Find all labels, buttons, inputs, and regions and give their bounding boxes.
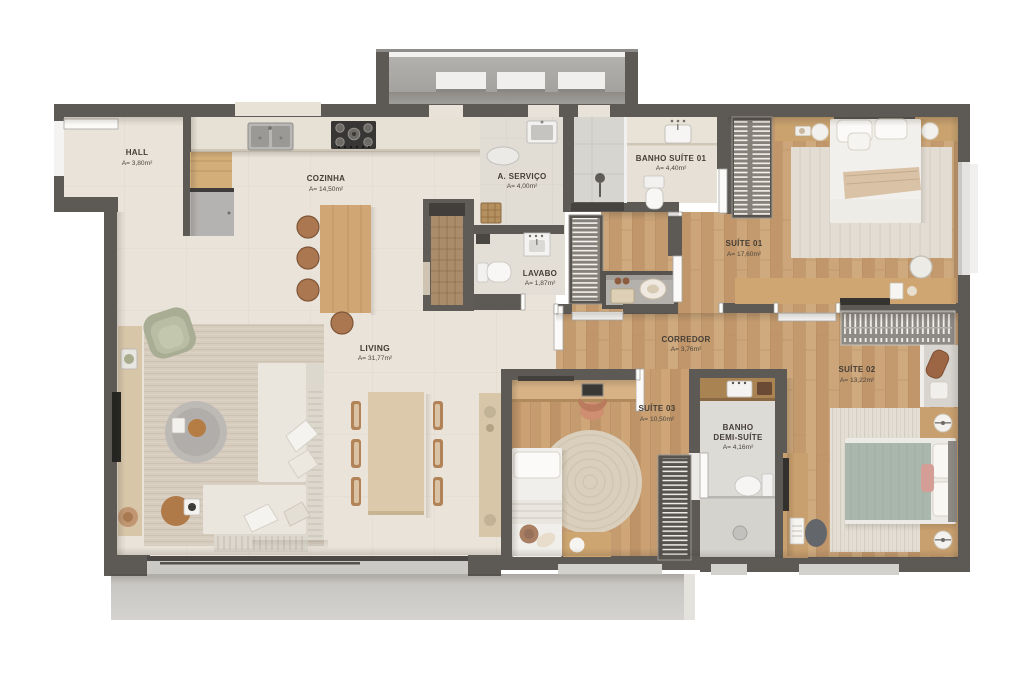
svg-text:BANHO SUÍTE 01: BANHO SUÍTE 01 bbox=[636, 154, 707, 163]
svg-text:A= 31,77m²: A= 31,77m² bbox=[358, 355, 393, 362]
svg-text:A= 3,80m²: A= 3,80m² bbox=[122, 160, 153, 167]
svg-text:LAVABO: LAVABO bbox=[523, 269, 557, 278]
svg-text:A= 10,50m²: A= 10,50m² bbox=[640, 416, 675, 423]
svg-text:COZINHA: COZINHA bbox=[307, 174, 346, 183]
svg-text:A. SERVIÇO: A. SERVIÇO bbox=[497, 172, 546, 181]
svg-text:A= 17,60m²: A= 17,60m² bbox=[727, 251, 762, 258]
svg-text:A= 4,16m²: A= 4,16m² bbox=[723, 444, 754, 451]
svg-text:LIVING: LIVING bbox=[360, 343, 390, 353]
svg-text:A= 1,87m²: A= 1,87m² bbox=[525, 280, 556, 287]
svg-text:A= 3,76m²: A= 3,76m² bbox=[671, 346, 702, 353]
svg-text:DEMI-SUÍTE: DEMI-SUÍTE bbox=[713, 433, 763, 442]
svg-text:HALL: HALL bbox=[126, 148, 149, 157]
svg-text:A= 4,40m²: A= 4,40m² bbox=[656, 165, 687, 172]
svg-text:A= 13,22m²: A= 13,22m² bbox=[840, 377, 875, 384]
svg-text:BANHO: BANHO bbox=[723, 423, 754, 432]
svg-text:A= 14,50m²: A= 14,50m² bbox=[309, 186, 344, 193]
svg-text:SUÍTE 02: SUÍTE 02 bbox=[838, 365, 875, 374]
svg-text:CORREDOR: CORREDOR bbox=[661, 335, 710, 344]
svg-text:SUÍTE 01: SUÍTE 01 bbox=[725, 239, 762, 248]
svg-text:SUÍTE 03: SUÍTE 03 bbox=[638, 404, 675, 413]
svg-text:A= 4,00m²: A= 4,00m² bbox=[507, 183, 538, 190]
